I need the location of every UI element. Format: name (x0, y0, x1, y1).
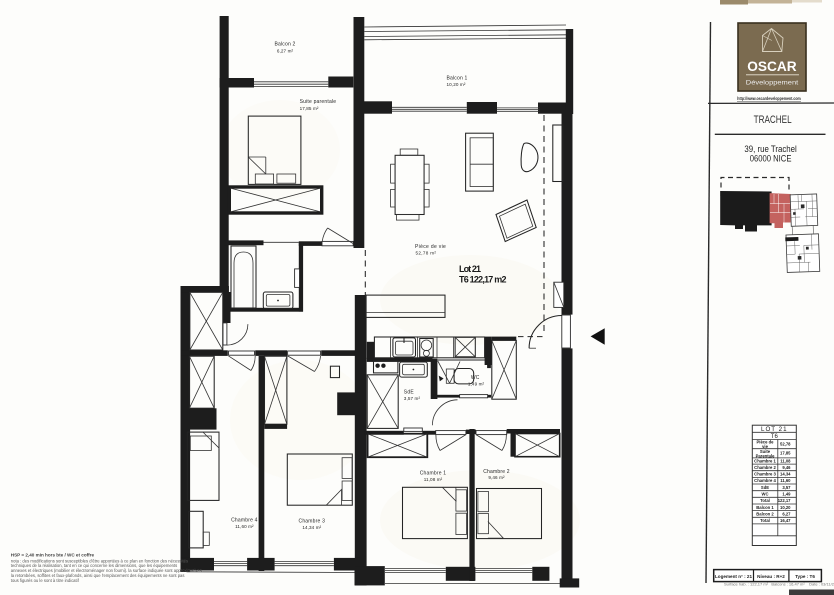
svg-text:52,78 m²: 52,78 m² (416, 251, 437, 256)
svg-text:Pièce de vie: Pièce de vie (415, 244, 446, 250)
svg-text:Développement: Développement (746, 80, 799, 87)
svg-text:6,27: 6,27 (782, 512, 791, 517)
svg-text:Type : T6: Type : T6 (795, 574, 815, 579)
svg-text:Chambre 4: Chambre 4 (754, 478, 776, 483)
svg-text:Logement n° : 21: Logement n° : 21 (715, 574, 753, 579)
svg-text:WC: WC (762, 492, 769, 497)
svg-text:http://www.oscardeveloppement.: http://www.oscardeveloppement.com (737, 96, 801, 101)
svg-text:T6 122,17 m2: T6 122,17 m2 (459, 275, 507, 285)
svg-text:1,49: 1,49 (782, 492, 791, 497)
svg-text:Total: Total (760, 518, 770, 523)
svg-text:6,27 m²: 6,27 m² (277, 49, 294, 54)
svg-text:HSP = 2,40 min hors bte / WC e: HSP = 2,40 min hors bte / WC et coffre (11, 553, 95, 558)
svg-text:Surface hab. : 122,17 m² Bal: Surface hab. : 122,17 m² Balcons : 16,47… (724, 582, 834, 587)
svg-text:Balcon 2: Balcon 2 (756, 512, 774, 517)
svg-text:Chambre 3: Chambre 3 (299, 519, 326, 525)
svg-text:LOT 21: LOT 21 (761, 426, 788, 433)
svg-text:Lot 21: Lot 21 (459, 264, 481, 274)
svg-text:122,17: 122,17 (778, 498, 791, 503)
svg-text:Chambre 3: Chambre 3 (754, 472, 776, 477)
svg-text:OSCAR: OSCAR (747, 59, 797, 74)
svg-text:TRACHEL: TRACHEL (754, 114, 792, 126)
svg-text:SdE: SdE (761, 485, 769, 490)
svg-text:10,20: 10,20 (780, 505, 791, 510)
svg-text:16,47: 16,47 (780, 518, 791, 523)
svg-text:3,57 m²: 3,57 m² (404, 396, 421, 401)
svg-text:9,46 m²: 9,46 m² (488, 475, 505, 480)
svg-text:SdE: SdE (404, 390, 415, 396)
svg-text:Suite parentale: Suite parentale (300, 99, 337, 105)
svg-text:14,34 m²: 14,34 m² (302, 525, 321, 530)
svg-text:11,60: 11,60 (780, 478, 791, 483)
svg-text:Total: Total (760, 498, 770, 503)
svg-text:Chambre 2: Chambre 2 (483, 469, 510, 475)
svg-text:11,08: 11,08 (780, 459, 791, 464)
svg-text:Chambre 4: Chambre 4 (231, 518, 258, 524)
svg-text:3,57: 3,57 (782, 485, 791, 490)
svg-text:Chambre 2: Chambre 2 (754, 465, 776, 470)
svg-text:17,85 m²: 17,85 m² (300, 106, 319, 111)
svg-text:1,49 m²: 1,49 m² (468, 382, 485, 387)
svg-text:9,46: 9,46 (782, 465, 791, 470)
svg-text:52,78: 52,78 (780, 442, 791, 447)
svg-text:Balcon 1: Balcon 1 (756, 505, 774, 510)
svg-text:tous figurés ou le sont à titr: tous figurés ou le sont à titre indicati… (11, 578, 80, 583)
svg-text:Balcon 2: Balcon 2 (274, 42, 295, 48)
svg-text:17,85: 17,85 (780, 451, 791, 456)
svg-text:Chambre 1: Chambre 1 (420, 471, 447, 477)
svg-text:39, rue Trachel: 39, rue Trachel (744, 144, 796, 154)
svg-text:WC: WC (471, 375, 480, 381)
svg-text:14,34: 14,34 (780, 472, 791, 477)
svg-text:Balcon 1: Balcon 1 (446, 76, 467, 82)
svg-text:06000 NICE: 06000 NICE (750, 154, 792, 164)
svg-text:Niveau : R+2: Niveau : R+2 (757, 574, 785, 579)
svg-text:11,60 m²: 11,60 m² (235, 524, 254, 529)
svg-text:11,08 m²: 11,08 m² (424, 477, 443, 482)
svg-text:10,20 m²: 10,20 m² (447, 82, 466, 87)
svg-text:Chambre 1: Chambre 1 (754, 459, 776, 464)
